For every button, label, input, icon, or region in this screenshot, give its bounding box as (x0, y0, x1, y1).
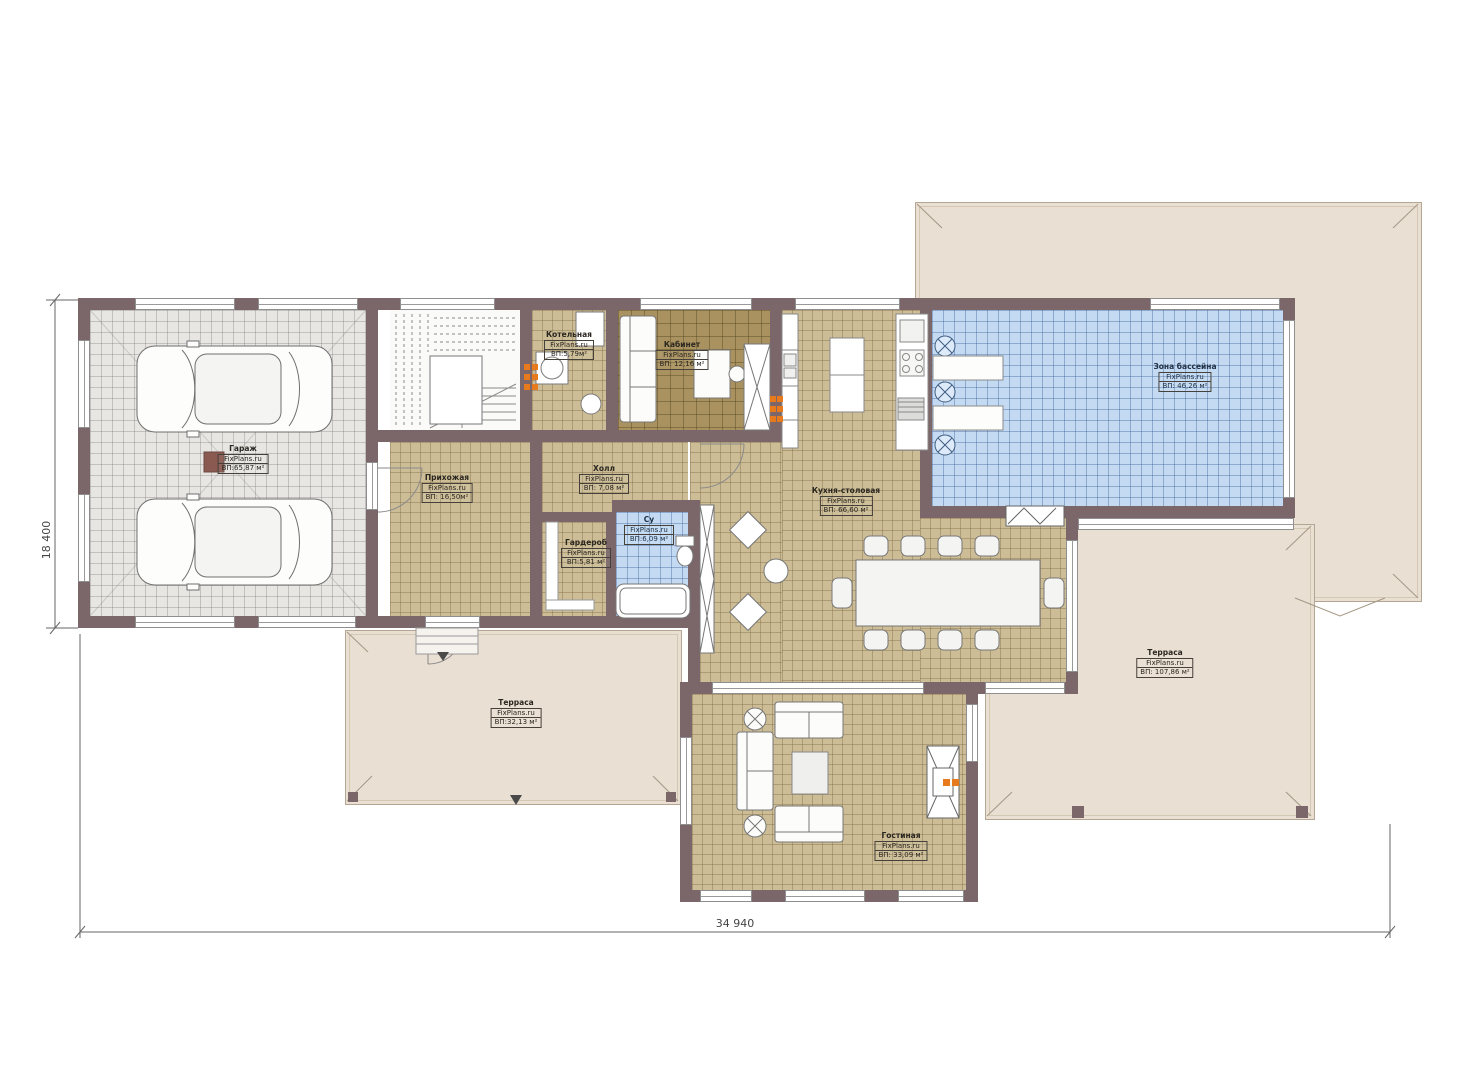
wall (688, 500, 700, 628)
room-label-bath: Су FixPlans.ru ВП:6,09 м² (624, 515, 674, 545)
entry-door (425, 616, 480, 628)
wall (378, 430, 790, 442)
room-label-boiler: Котельная FixPlans.ru ВП:5,79м² (544, 330, 594, 360)
dimension-height-label: 18 400 (40, 521, 53, 560)
wall (920, 506, 1295, 518)
room-label-wardrobe: Гардероб FixPlans.ru ВП:5,81 м² (561, 538, 611, 568)
glazing-pool-terrace (1078, 518, 1294, 530)
room-label-hall: Холл FixPlans.ru ВП: 7,08 м² (579, 464, 629, 494)
room-label-terrace-left: Терраса FixPlans.ru ВП:32,13 м² (491, 698, 542, 728)
window (795, 298, 900, 310)
room-label-pool: Зона бассейна FixPlans.ru ВП: 46,26 м² (1153, 362, 1216, 392)
glazing-living (712, 682, 924, 694)
wall (612, 500, 700, 512)
room-label-garage: Гараж FixPlans.ru ВП:65,87 м² (218, 444, 269, 474)
staircase-floor (390, 310, 520, 430)
room-label-kitchen: Кухня-столовая FixPlans.ru ВП: 66,60 м² (812, 486, 880, 516)
window (135, 616, 235, 628)
window (1283, 320, 1295, 498)
room-label-office: Кабинет FixPlans.ru ВП: 12,16 м² (655, 340, 708, 370)
pool-floor (932, 310, 1283, 506)
wall (520, 298, 532, 442)
wall (770, 298, 782, 442)
room-label-terrace-right: Терраса FixPlans.ru ВП: 107,86 м² (1136, 648, 1193, 678)
kitchen-floor-left (690, 442, 782, 682)
wall (542, 512, 612, 522)
wall (606, 616, 700, 628)
glazing-kitchen-terrace (985, 682, 1065, 694)
window (1066, 540, 1078, 672)
wall (920, 298, 932, 518)
kitchen-floor-right (920, 518, 1066, 682)
window (135, 298, 235, 310)
room-label-entry: Прихожая FixPlans.ru ВП: 16,50м² (422, 473, 473, 503)
window (966, 704, 978, 762)
office-floor (618, 310, 770, 430)
entry-floor (390, 442, 530, 616)
wall (606, 298, 618, 442)
window (400, 298, 495, 310)
wall (530, 442, 542, 628)
window (680, 737, 692, 825)
boiler-floor (532, 310, 606, 430)
window (640, 298, 752, 310)
window (258, 298, 358, 310)
window (78, 340, 90, 428)
garage-inner-door (366, 462, 378, 510)
floor-plan: 34 940 18 400 Гараж FixPlans.ru ВП:65,87… (0, 0, 1474, 1080)
window (1150, 298, 1280, 310)
window (785, 890, 865, 902)
window (898, 890, 964, 902)
window (78, 494, 90, 582)
window (700, 890, 752, 902)
room-label-living: Гостиная FixPlans.ru ВП: 33,09 м² (874, 831, 927, 861)
dimension-width-label: 34 940 (716, 917, 755, 930)
window (258, 616, 356, 628)
